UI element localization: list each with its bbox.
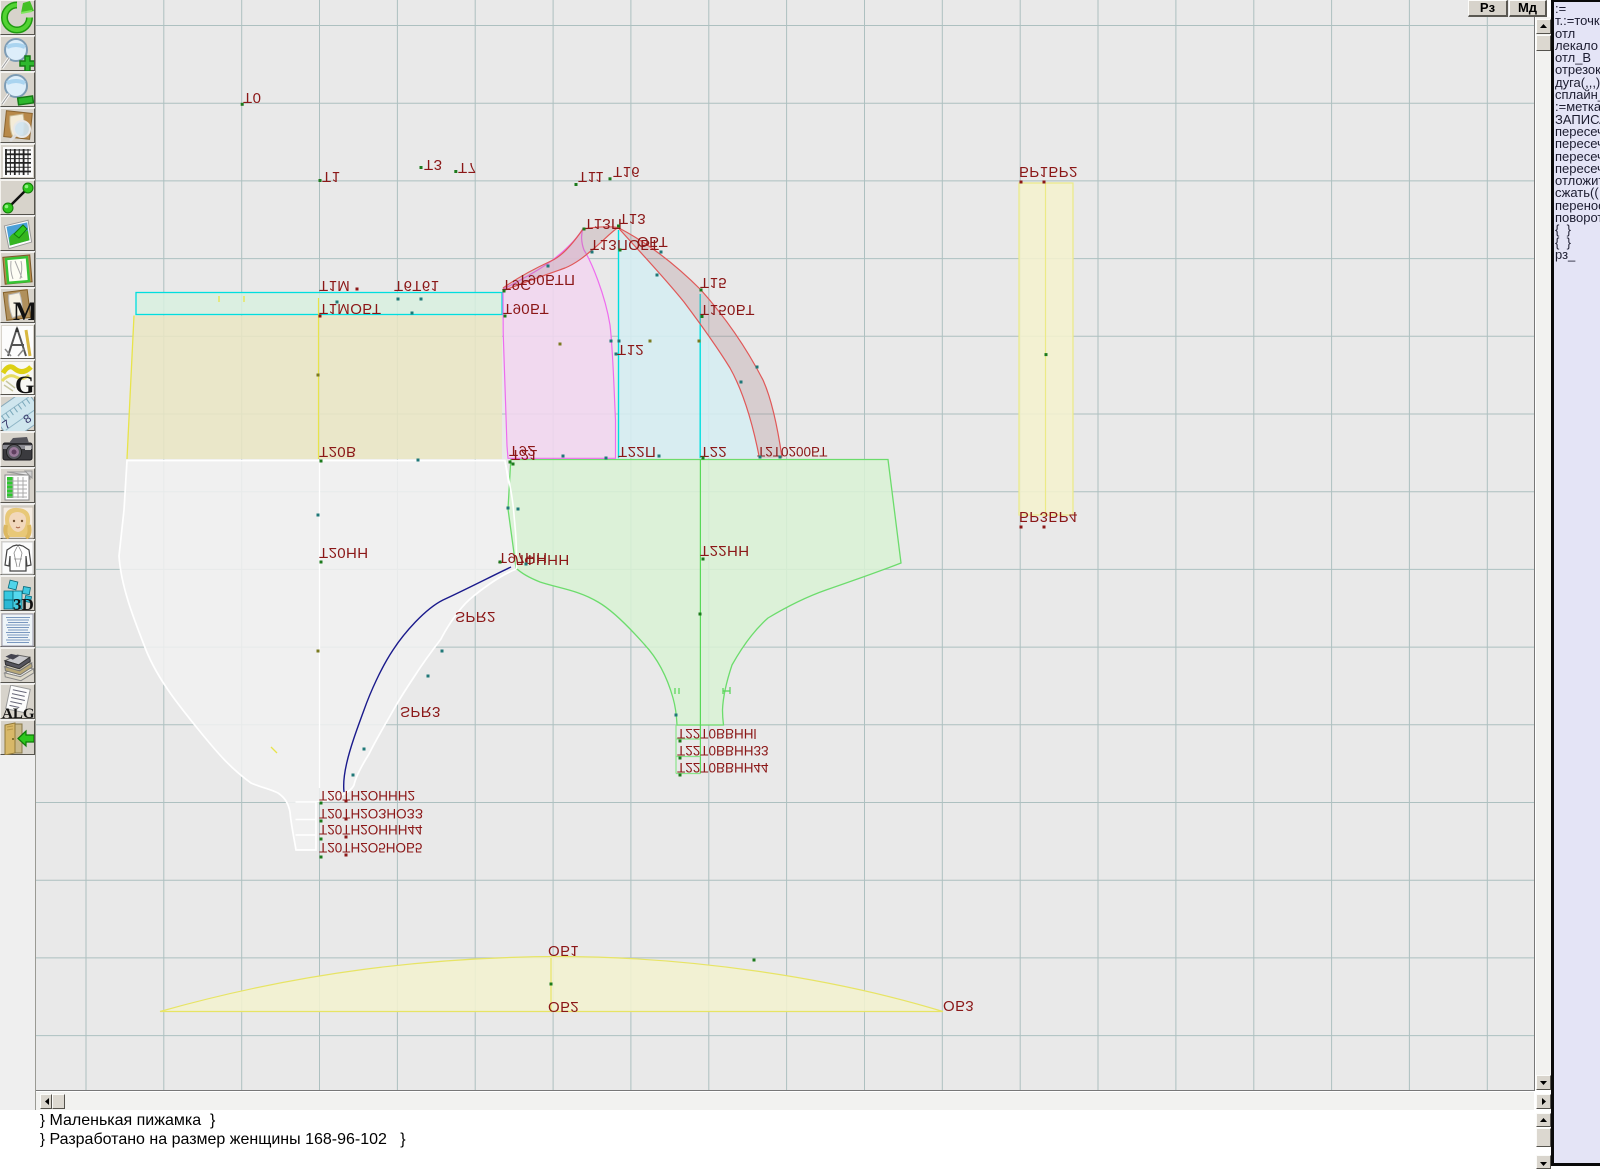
svg-text:Т22НН: Т22НН [700, 542, 750, 559]
svg-text:ОБ3: ОБ3 [943, 997, 974, 1014]
svg-text:Т3: Т3 [424, 156, 442, 173]
svg-text:3D: 3D [13, 595, 34, 611]
svg-text:Т2Т0200БТ: Т2Т0200БТ [757, 444, 828, 459]
svg-text:Т20ТН2О5НОБ5: Т20ТН2О5НОБ5 [319, 840, 422, 855]
svg-text:ОБ2: ОБ2 [548, 998, 579, 1015]
svg-text:Т9С: Т9С [502, 276, 532, 293]
svg-text:БР1БР2: БР1БР2 [1019, 163, 1078, 180]
svg-text:Т20ТН2ОННН44: Т20ТН2ОННН44 [319, 822, 423, 837]
svg-text:Т13П: Т13П [584, 215, 622, 232]
svg-text:Т6Т61: Т6Т61 [394, 277, 439, 294]
svg-text:Т1МОБТ: Т1МОБТ [319, 300, 381, 317]
svg-text:Т11: Т11 [578, 168, 604, 185]
svg-text:ОБТ: ОБТ [637, 233, 668, 250]
svg-text:G: G [15, 372, 34, 395]
svg-text:Т0: Т0 [243, 89, 261, 106]
svg-text:SPR2: SPR2 [455, 608, 496, 625]
svg-text:Т90БТ: Т90БТ [503, 300, 549, 317]
svg-text:Т1М: Т1М [319, 277, 350, 294]
svg-text:Т22Т0ВВНН44: Т22Т0ВВНН44 [677, 760, 769, 775]
svg-text:Т150БТ: Т150БТ [700, 301, 755, 318]
svg-text:ОБ1: ОБ1 [548, 942, 579, 959]
svg-text:ЛФННН: ЛФННН [514, 551, 570, 568]
svg-text:ALG: ALG [2, 706, 34, 719]
svg-text:Т20ТН2ОЗНОЗЗ: Т20ТН2ОЗНОЗЗ [319, 806, 423, 821]
svg-text:M: M [13, 297, 34, 323]
svg-text:Т7: Т7 [458, 159, 476, 176]
svg-text:Т12: Т12 [617, 341, 644, 358]
svg-text:SPR3: SPR3 [400, 703, 441, 720]
svg-text:Т15: Т15 [700, 274, 727, 291]
svg-text:Т21: Т21 [511, 446, 538, 463]
svg-text:Т22Т0ВВННl: Т22Т0ВВННl [677, 726, 757, 741]
svg-text:Т13: Т13 [619, 210, 646, 227]
svg-text:Т20ТН2ОННН2: Т20ТН2ОННН2 [319, 788, 415, 803]
svg-text:Т1: Т1 [322, 168, 340, 185]
svg-text:Т22Т0ВВНН33: Т22Т0ВВНН33 [677, 743, 769, 758]
svg-text:Т22П: Т22П [618, 443, 656, 460]
svg-text:Т20В: Т20В [319, 443, 356, 460]
svg-text:Т20НН: Т20НН [319, 544, 369, 561]
svg-text:Т16: Т16 [613, 163, 640, 180]
svg-text:БР3БР4: БР3БР4 [1019, 508, 1078, 525]
